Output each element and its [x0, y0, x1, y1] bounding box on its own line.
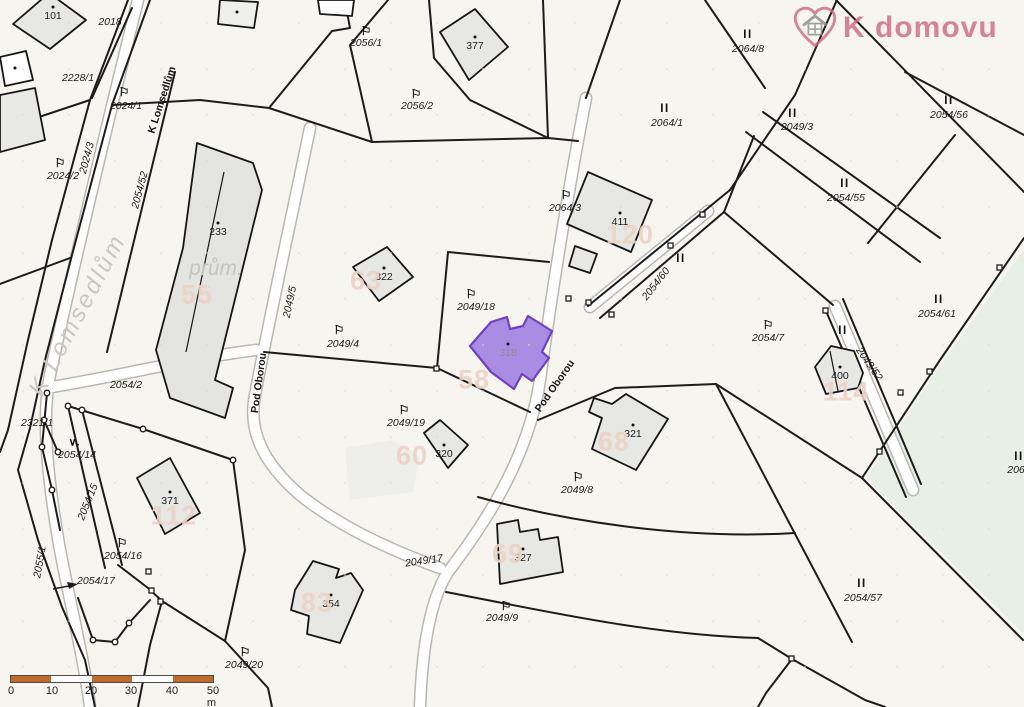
scale-segment: [51, 676, 91, 682]
parcel-2054-55: 2054/55: [827, 192, 865, 204]
parcel-2321-1: 2321/1: [21, 417, 53, 429]
II-symbol: II: [944, 95, 953, 107]
flag-symbol: ⚐: [561, 188, 572, 202]
heart-house-icon: [793, 6, 837, 50]
parcel-2049-17: 2049/17: [404, 552, 443, 569]
parcel-2049-5: 2049/5: [281, 285, 299, 319]
scale-tick: 10: [46, 685, 58, 697]
labels-layer: 20182228/12024/12024/22024/32054/522056/…: [0, 0, 1024, 707]
parcel-2049-19: 2049/19: [387, 417, 425, 429]
building-377: 377: [466, 40, 484, 52]
street-k-lomsedlum-large: K Lomsedlům: [23, 229, 132, 401]
scale-tick: 0: [8, 685, 14, 697]
watermark-58: 58: [458, 365, 490, 396]
flag-symbol: ⚐: [119, 85, 130, 99]
building-dot: [14, 67, 17, 70]
watermark-69: 69: [492, 539, 524, 570]
logo-text: K domovu: [843, 11, 998, 45]
V-symbol: ∨.: [68, 436, 79, 449]
scale-tick: 50 m: [207, 685, 219, 707]
flag-symbol: ⚐: [117, 536, 128, 550]
street-pod-oborou-west: Pod Oborou: [249, 352, 269, 414]
building-320: 320: [435, 448, 453, 460]
II-symbol: II: [857, 578, 866, 590]
scale-bar: 0 10 20 30 40 50 m: [10, 675, 214, 697]
II-symbol: II: [743, 29, 752, 41]
watermark-83: 83: [301, 588, 333, 619]
watermark-60: 60: [396, 441, 428, 472]
parcel-2024-2: 2024/2: [47, 170, 79, 182]
flag-symbol: ⚐: [573, 470, 584, 484]
parcel-2054-16: 2054/16: [104, 550, 142, 562]
building-dot: [217, 222, 220, 225]
flag-symbol: ⚐: [240, 645, 251, 659]
label-prum: prům.: [189, 257, 243, 281]
parcel-2064-1: 2064/1: [651, 117, 683, 129]
parcel-2024-1: 2024/1: [110, 100, 142, 112]
flag-symbol: ⚐: [763, 318, 774, 332]
watermark-114: 114: [823, 377, 870, 408]
flag-symbol: ⚐: [501, 599, 512, 613]
watermark-55: 55: [181, 280, 213, 311]
parcel-2054-14: 2054/14: [58, 449, 96, 461]
parcel-2049-18: 2049/18: [457, 301, 495, 313]
II-symbol: II: [788, 108, 797, 120]
building-dot: [169, 491, 172, 494]
parcel-2056-1: 2056/1: [350, 37, 382, 49]
parcel-2056-2: 2056/2: [401, 100, 433, 112]
building-dot: [236, 11, 239, 14]
II-symbol: II: [1014, 451, 1023, 463]
scale-tick: 30: [125, 685, 137, 697]
flag-symbol: ⚐: [361, 24, 372, 38]
street-pod-oborou-east: Pod Oborou: [533, 358, 578, 415]
parcel-2054-52: 2054/52: [129, 170, 150, 210]
parcel-2054-7: 2054/7: [752, 332, 784, 344]
parcel-2054-56: 2054/56: [930, 109, 968, 121]
scale-bar-ticks: 0 10 20 30 40 50 m: [10, 683, 214, 697]
parcel-2054-60: 2054/60: [640, 265, 673, 302]
watermark-120: 120: [606, 220, 654, 251]
parcel-2049-20: 2049/20: [225, 659, 263, 671]
flag-symbol: ⚐: [466, 287, 477, 301]
parcel-2049-8: 2049/8: [561, 484, 593, 496]
scale-tick: 20: [85, 685, 97, 697]
II-symbol: II: [934, 294, 943, 306]
parcel-2049-3: 2049/3: [781, 121, 813, 133]
building-dot: [619, 212, 622, 215]
flag-symbol: ⚐: [55, 156, 66, 170]
building-dot: [443, 444, 446, 447]
parcel-2024-3: 2024/3: [77, 141, 97, 175]
flag-symbol: ⚐: [411, 87, 422, 101]
building-233: 233: [209, 226, 227, 238]
building-101: 101: [44, 10, 62, 22]
building-dot: [52, 6, 55, 9]
parcel-2228-1: 2228/1: [62, 72, 94, 84]
parcel-2064-8: 2064/8: [732, 43, 764, 55]
scale-bar-segments: [10, 675, 214, 683]
parcel-2064-3: 2064/3: [549, 202, 581, 214]
II-symbol: II: [840, 178, 849, 190]
scale-segment: [132, 676, 172, 682]
flag-symbol: ⚐: [399, 403, 410, 417]
scale-segment: [11, 676, 51, 682]
parcel-2018: 2018: [98, 16, 121, 28]
parcel-2054-15: 2054/15: [75, 482, 100, 522]
II-symbol: II: [838, 325, 847, 337]
building-dot: [632, 424, 635, 427]
parcel-2054-61: 2054/61: [918, 308, 956, 320]
parcel-2055-1: 2055/1: [31, 545, 48, 579]
flag-symbol: ⚐: [334, 323, 345, 337]
parcel-2054-57: 2054/57: [844, 592, 882, 604]
II-symbol: II: [660, 103, 669, 115]
parcel-206-partial: 206: [1007, 464, 1024, 476]
watermark-63: 63: [350, 266, 382, 297]
parcel-2049-4: 2049/4: [327, 338, 359, 350]
II-symbol: II: [676, 253, 685, 265]
parcel-2049-9: 2049/9: [486, 612, 518, 624]
building-dot: [474, 36, 477, 39]
parcel-2054-17: 2054/17: [77, 575, 115, 587]
building-dot: [383, 267, 386, 270]
building-dot: [839, 366, 842, 369]
k-domovu-logo[interactable]: K domovu: [793, 6, 998, 50]
cadastral-map: 20182228/12024/12024/22024/32054/522056/…: [0, 0, 1024, 707]
parcel-2054-2: 2054/2: [110, 379, 142, 391]
watermark-68: 68: [598, 427, 630, 458]
watermark-112: 112: [151, 501, 198, 532]
scale-tick: 40: [166, 685, 178, 697]
building-dot: [507, 343, 510, 346]
street-k-lomsedlum-small: K Lomsedlům: [146, 65, 179, 135]
building-318: 318: [499, 347, 517, 359]
scale-segment: [92, 676, 132, 682]
scale-segment: [173, 676, 213, 682]
